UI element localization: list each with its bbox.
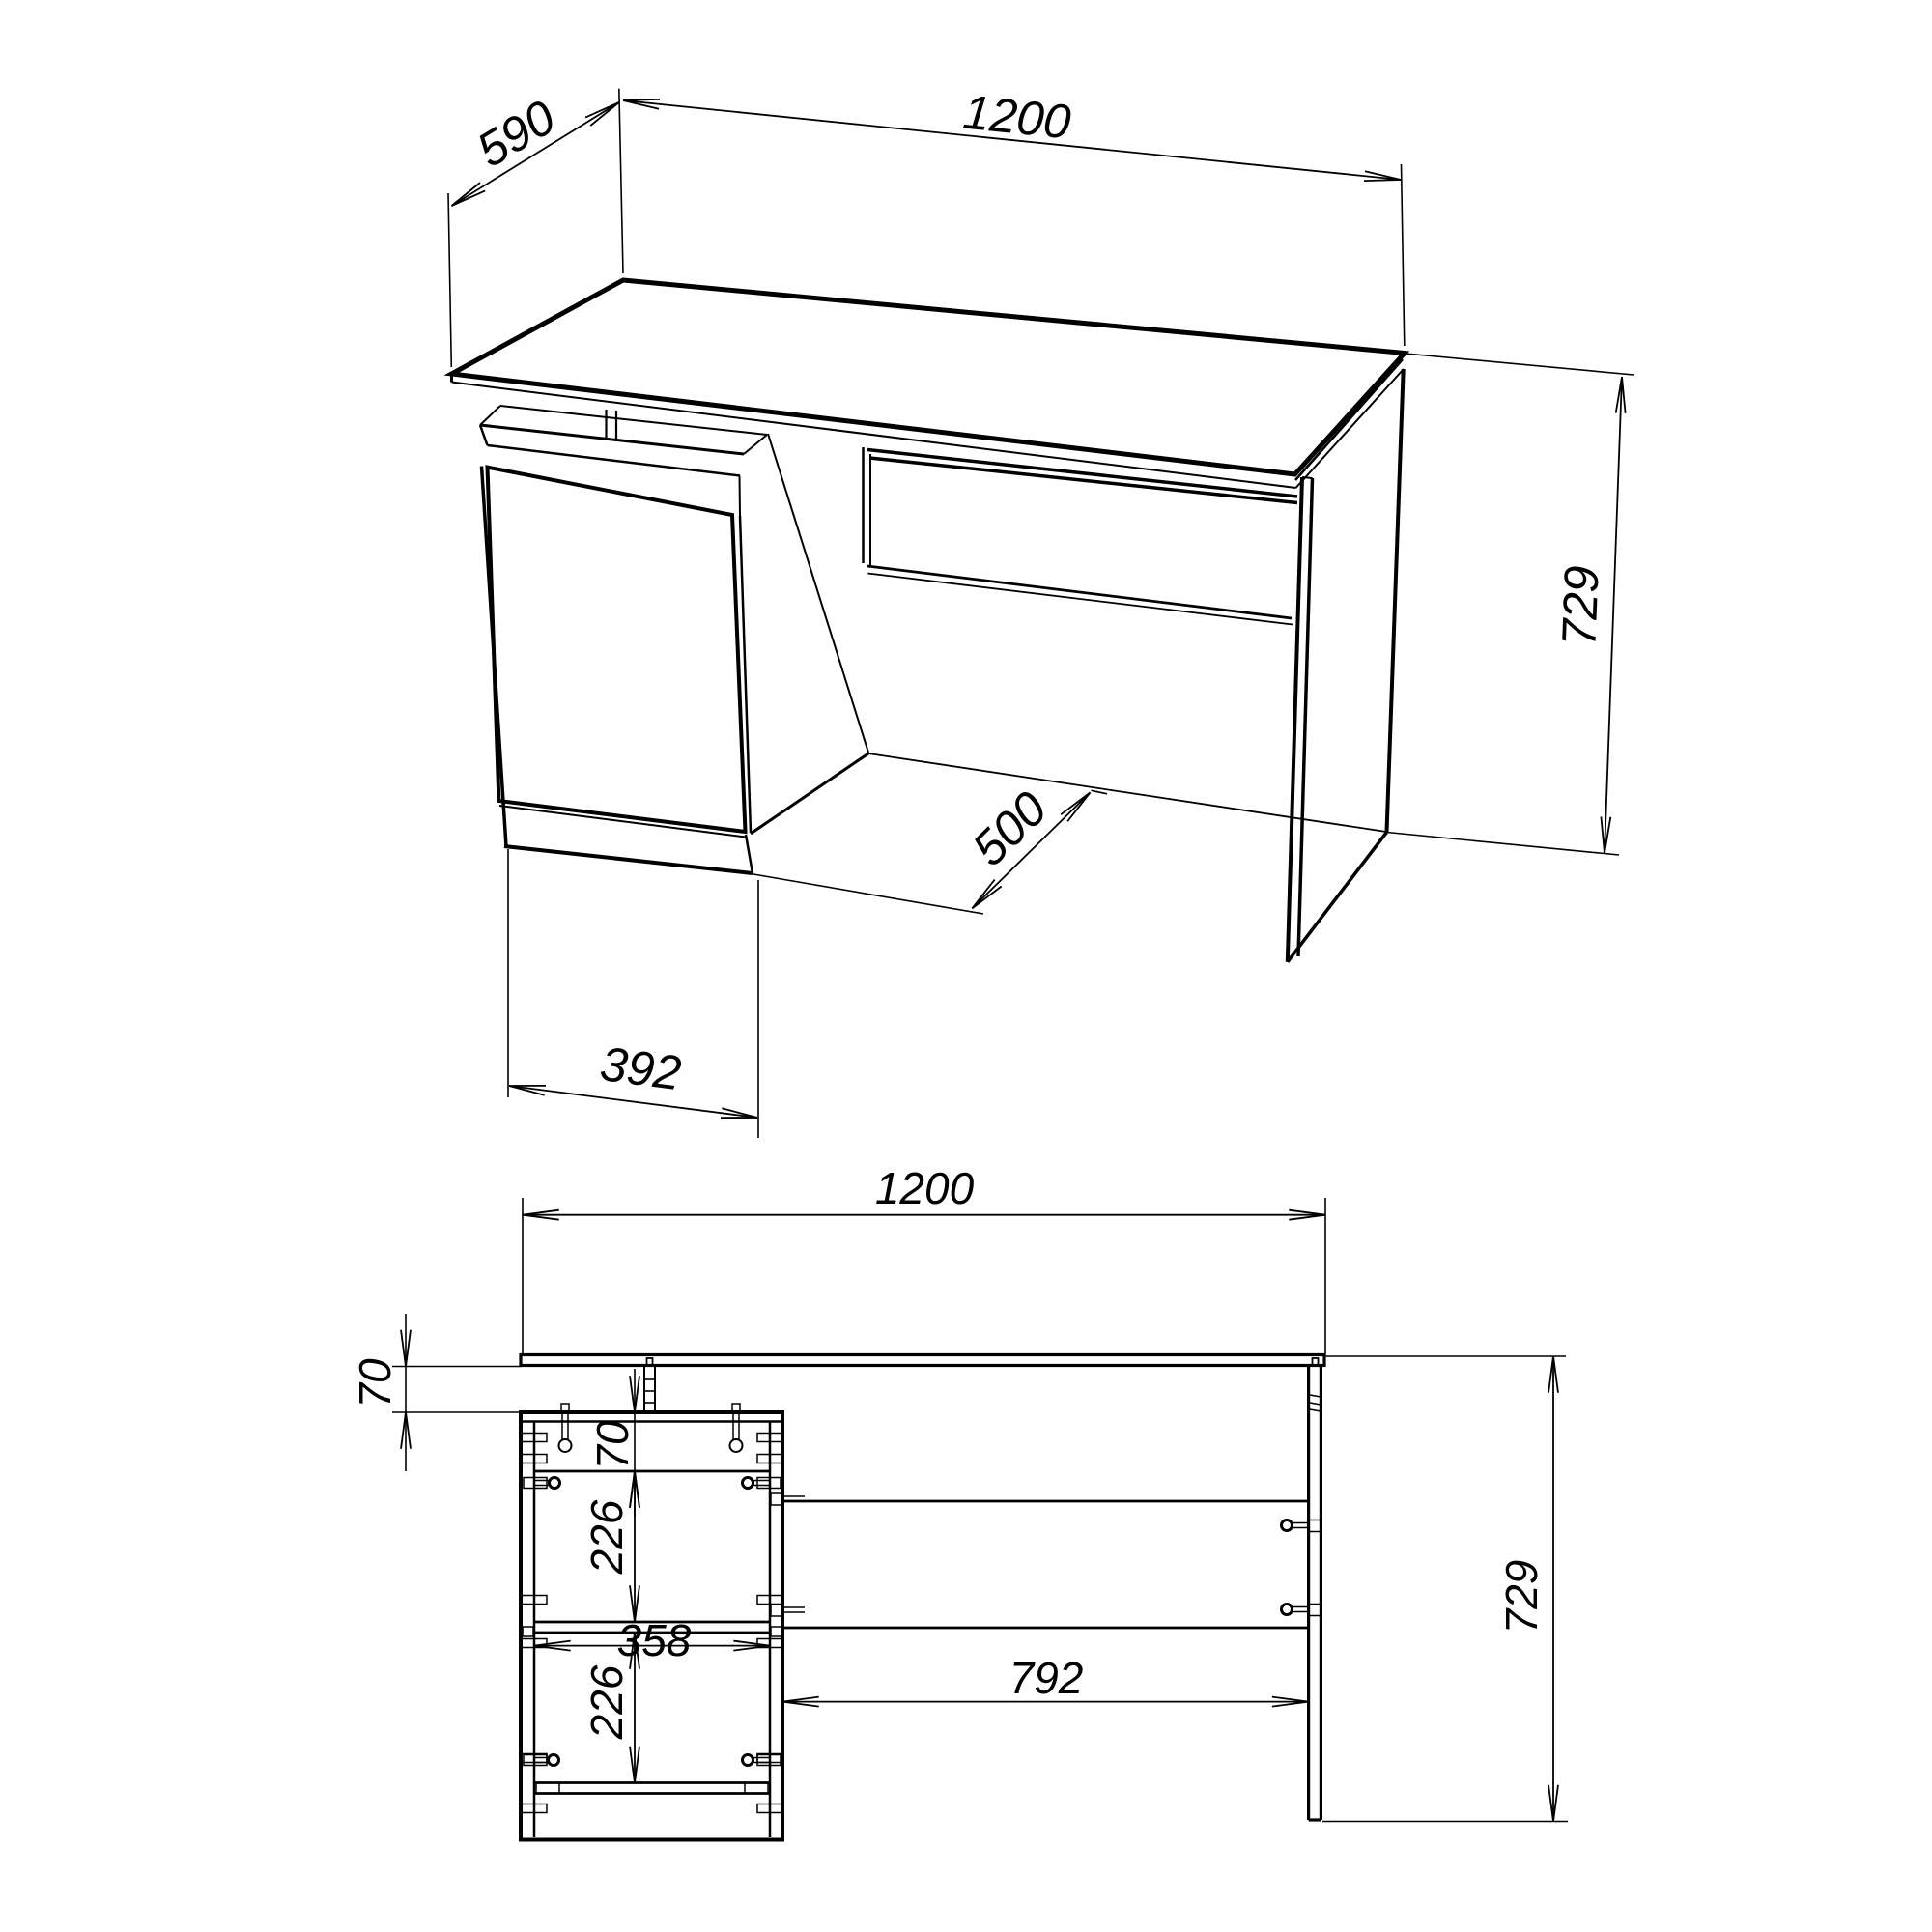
svg-text:1200: 1200: [875, 1163, 975, 1213]
svg-text:358: 358: [617, 1615, 692, 1665]
svg-text:70: 70: [587, 1420, 638, 1470]
svg-text:1200: 1200: [961, 85, 1074, 150]
svg-text:729: 729: [1551, 565, 1608, 648]
svg-text:226: 226: [582, 1499, 632, 1575]
svg-text:729: 729: [1496, 1560, 1547, 1634]
svg-text:392: 392: [597, 1037, 684, 1100]
svg-text:226: 226: [582, 1664, 632, 1740]
svg-text:70: 70: [350, 1358, 400, 1408]
svg-text:792: 792: [1009, 1653, 1084, 1703]
